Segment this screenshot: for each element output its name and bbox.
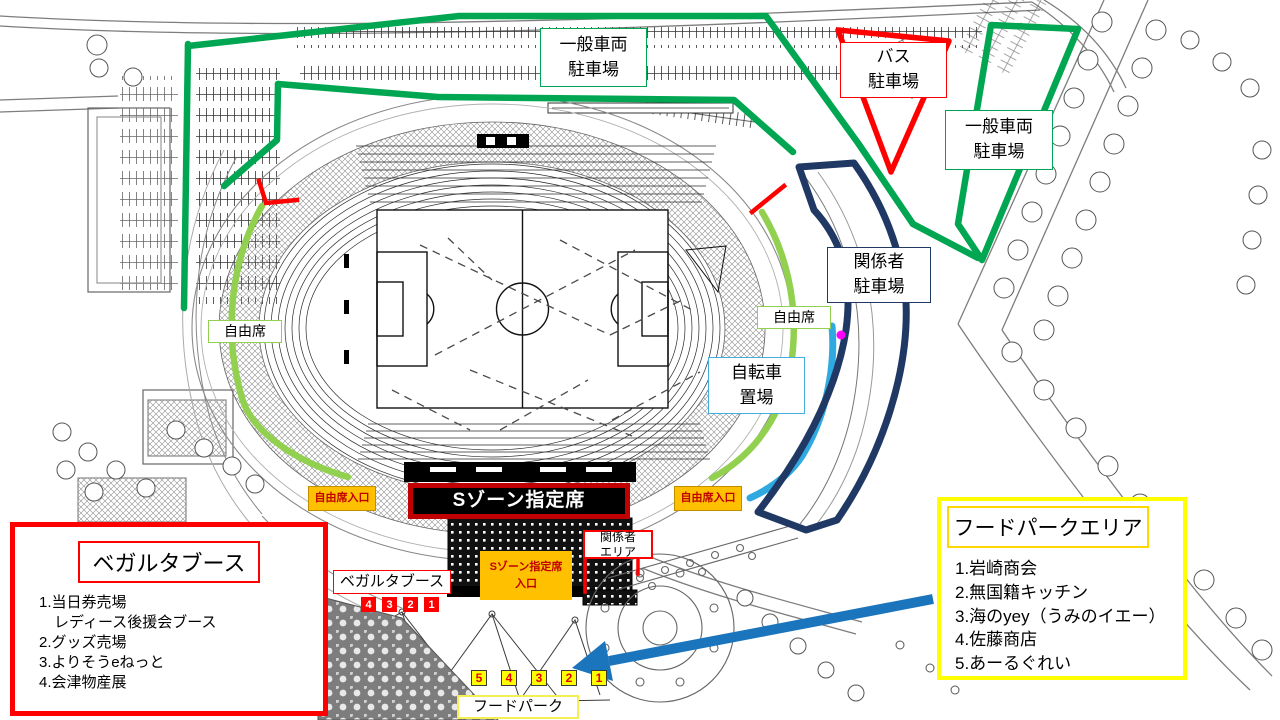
list-item: レディース後援会ブース [39,613,323,633]
foodpark-number-4: 4 [501,670,517,686]
list-item: 2.グッズ売場 [39,633,323,653]
vegalta-panel-list: 1.当日券売場 レディース後援会ブース 2.グッズ売場 3.よりそうeねっと 4… [15,593,323,693]
vegalta-booth-numbers: 4 3 2 1 [361,597,439,612]
foodpark-number-5: 5 [471,670,487,686]
label-staff-parking: 関係者 駐車場 [827,247,931,303]
label-vegalta-booth: ベガルタブース [333,570,451,594]
foodpark-panel-title: フードパークエリア [947,506,1149,548]
list-item: 5.あーるぐれい [955,652,1183,676]
label-bus-parking: バス 駐車場 [840,42,947,98]
magenta-marker-dot [837,331,846,340]
booth-number-2: 2 [403,597,418,612]
label-general-parking-right: 一般車両 駐車場 [945,110,1053,170]
label-free-seat-entrance-right: 自由席入口 [674,486,742,511]
label-free-seat-entrance-left: 自由席入口 [308,486,376,511]
list-item: 1.当日券売場 [39,593,323,613]
foodpark-area-panel: フードパークエリア 1.岩崎商会 2.無国籍キッチン 3.海のyey（うみのイエ… [937,497,1187,680]
label-bicycle-parking: 自転車 置場 [708,357,805,414]
booth-number-4: 4 [361,597,376,612]
stadium-site-map: 一般車両 駐車場 バス 駐車場 一般車両 駐車場 関係者 駐車場 自由席 自由席… [0,0,1280,720]
list-item: 3.海のyey（うみのイエー） [955,605,1183,629]
foodpark-pointer-arrow [572,599,933,681]
label-free-seat-left: 自由席 [208,320,282,343]
list-item: 4.佐藤商店 [955,628,1183,652]
label-s-zone-reserved-seats: Sゾーン指定席 [408,483,630,519]
booth-number-1: 1 [424,597,439,612]
foodpark-stall-numbers: 5 4 3 2 1 [471,670,607,686]
label-staff-area: 関係者 エリア [583,530,653,559]
foodpark-number-1: 1 [591,670,607,686]
foodpark-number-3: 3 [531,670,547,686]
vegalta-booth-panel: ベガルタブース 1.当日券売場 レディース後援会ブース 2.グッズ売場 3.より… [10,522,328,716]
label-general-parking-top: 一般車両 駐車場 [540,28,647,87]
label-food-park: フードパーク [457,695,579,719]
list-item: 4.会津物産展 [39,673,323,693]
list-item: 3.よりそうeねっと [39,653,323,673]
soccer-field [377,210,726,408]
label-free-seat-right: 自由席 [757,306,831,329]
list-item: 1.岩崎商会 [955,557,1183,581]
foodpark-number-2: 2 [561,670,577,686]
booth-number-3: 3 [382,597,397,612]
foodpark-panel-list: 1.岩崎商会 2.無国籍キッチン 3.海のyey（うみのイエー） 4.佐藤商店 … [941,557,1183,676]
vegalta-panel-title: ベガルタブース [78,541,260,583]
list-item: 2.無国籍キッチン [955,581,1183,605]
label-s-zone-entrance: Sゾーン指定席 入口 [480,551,572,600]
